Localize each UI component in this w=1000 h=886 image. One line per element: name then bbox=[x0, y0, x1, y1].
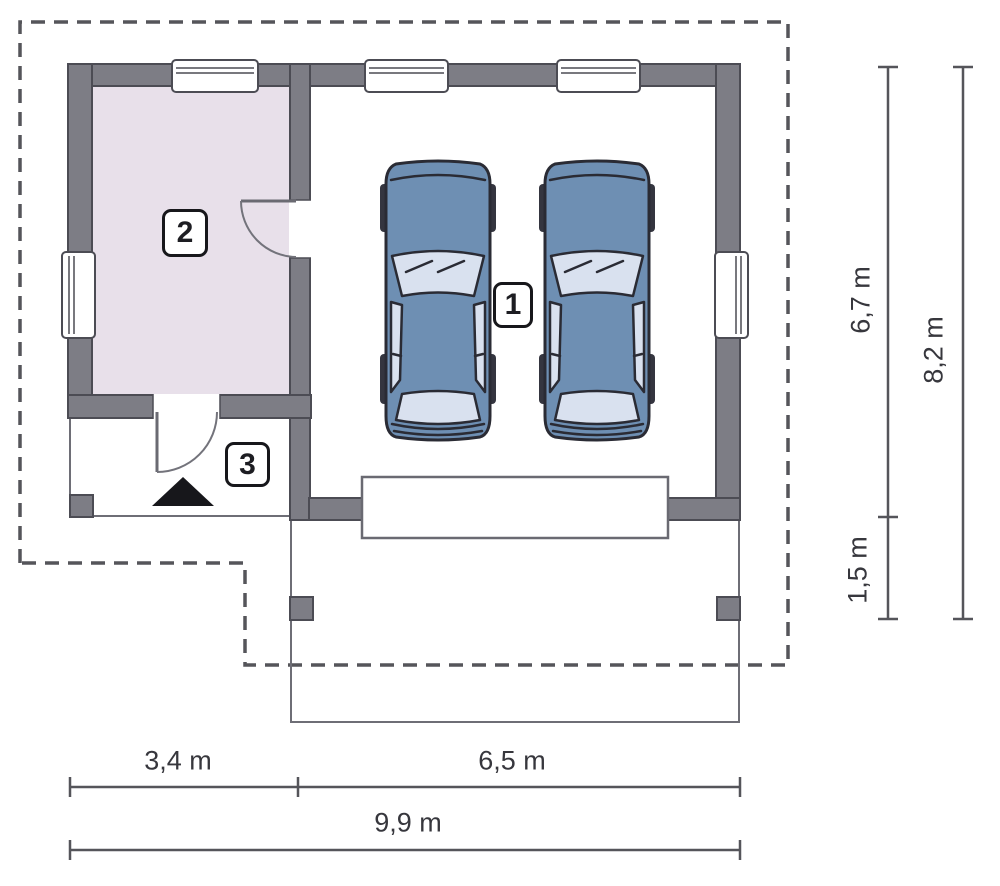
dim-line-bottom-upper bbox=[70, 777, 740, 797]
paving-outlines bbox=[70, 418, 739, 722]
porch-pillar bbox=[70, 495, 93, 517]
dim-line-right-outer bbox=[953, 67, 973, 619]
room-label-garage: 1 bbox=[493, 282, 533, 328]
dimension-right-driveway: 1,5 m bbox=[843, 536, 874, 604]
entrance-arrow-icon bbox=[152, 477, 214, 506]
window-top-1 bbox=[172, 60, 258, 92]
floor-plan-page: 1 2 3 6,7 m 1,5 m 8,2 m 3,4 m 6,5 m 9,9 … bbox=[0, 0, 1000, 886]
dimension-bottom-left: 3,4 m bbox=[144, 746, 212, 777]
driveway-outline bbox=[291, 516, 739, 722]
room-label-entry-porch-text: 3 bbox=[239, 448, 256, 482]
car-1-icon bbox=[380, 161, 496, 440]
window-right bbox=[715, 252, 748, 338]
dimension-bottom-right: 6,5 m bbox=[478, 746, 546, 777]
window-left bbox=[62, 252, 95, 338]
window-top-3 bbox=[557, 60, 640, 92]
driveway-pillar-left bbox=[290, 597, 313, 620]
dim-line-right-inner bbox=[878, 67, 898, 619]
room-label-garage-text: 1 bbox=[505, 288, 522, 322]
room-label-utility-room-text: 2 bbox=[177, 216, 194, 250]
dim-line-bottom-lower bbox=[70, 840, 740, 860]
wall-divider bbox=[290, 64, 310, 520]
window-top-2 bbox=[365, 60, 448, 92]
wall-left bbox=[68, 64, 92, 418]
dimension-right-total: 8,2 m bbox=[919, 316, 950, 384]
room-label-entry-porch: 3 bbox=[225, 442, 270, 487]
dimension-bottom-total: 9,9 m bbox=[374, 808, 442, 839]
dimension-right-depth: 6,7 m bbox=[846, 266, 877, 334]
driveway-pillar-right bbox=[717, 597, 740, 620]
garage-door bbox=[362, 477, 668, 538]
entry-door bbox=[153, 394, 220, 472]
car-2-icon bbox=[539, 161, 655, 440]
room-label-utility-room: 2 bbox=[162, 209, 208, 257]
